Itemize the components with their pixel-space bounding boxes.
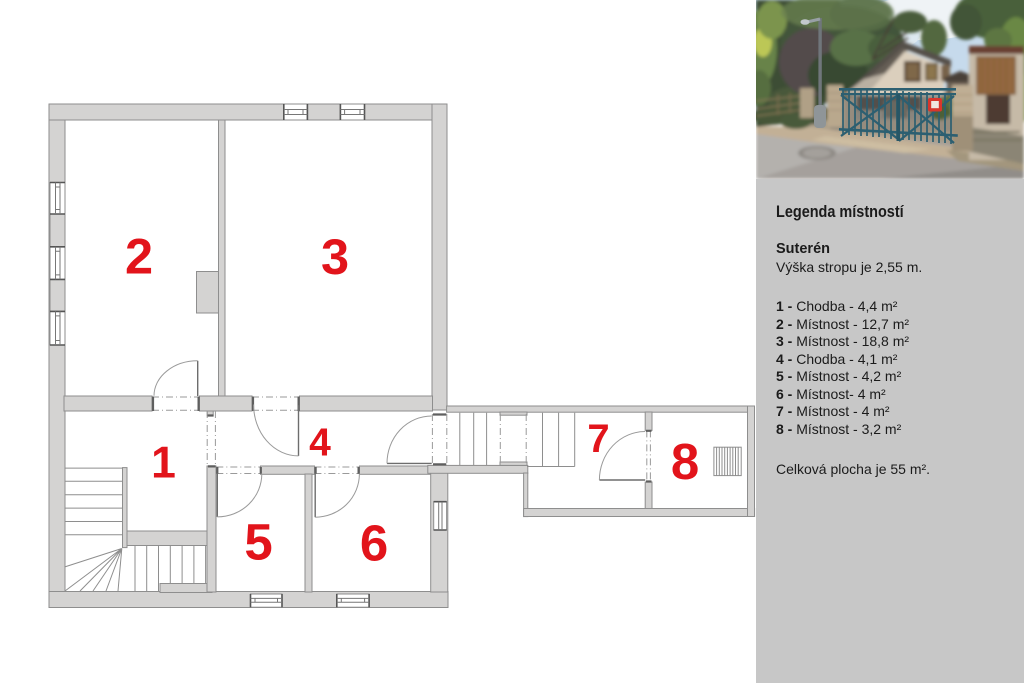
- svg-text:6: 6: [360, 515, 388, 572]
- svg-text:7: 7: [587, 417, 609, 461]
- svg-text:8: 8: [671, 433, 699, 490]
- svg-text:2: 2: [125, 228, 153, 285]
- svg-text:1: 1: [151, 439, 176, 488]
- svg-text:3: 3: [321, 228, 349, 285]
- svg-text:5: 5: [244, 514, 272, 571]
- svg-text:4: 4: [309, 422, 331, 465]
